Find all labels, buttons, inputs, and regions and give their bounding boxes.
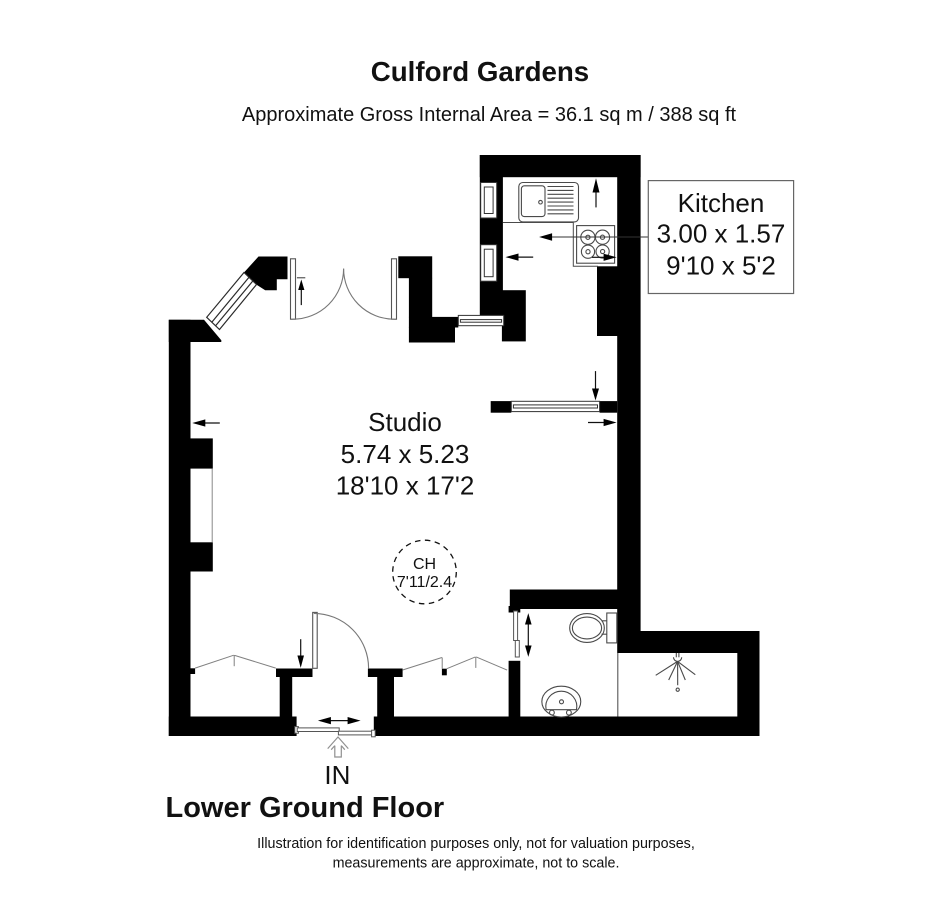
svg-text:CH: CH bbox=[413, 556, 436, 573]
svg-text:measurements are approximate,: measurements are approximate, not to sca… bbox=[333, 856, 620, 872]
svg-text:Approximate Gross Internal Are: Approximate Gross Internal Area = 36.1 s… bbox=[242, 104, 737, 126]
svg-text:Lower Ground Floor: Lower Ground Floor bbox=[166, 792, 445, 824]
svg-text:5.74 x 5.23: 5.74 x 5.23 bbox=[341, 439, 470, 469]
svg-text:Culford Gardens: Culford Gardens bbox=[371, 56, 589, 87]
svg-text:18'10 x 17'2: 18'10 x 17'2 bbox=[336, 470, 475, 500]
svg-text:Illustration for identificatio: Illustration for identification purposes… bbox=[257, 836, 695, 852]
svg-text:7'11/2.4: 7'11/2.4 bbox=[397, 574, 452, 591]
svg-text:IN: IN bbox=[324, 760, 350, 790]
svg-text:9'10 x 5'2: 9'10 x 5'2 bbox=[666, 251, 776, 281]
svg-text:Kitchen: Kitchen bbox=[678, 188, 765, 218]
svg-text:Studio: Studio bbox=[368, 407, 442, 437]
svg-text:3.00 x 1.57: 3.00 x 1.57 bbox=[657, 219, 786, 249]
